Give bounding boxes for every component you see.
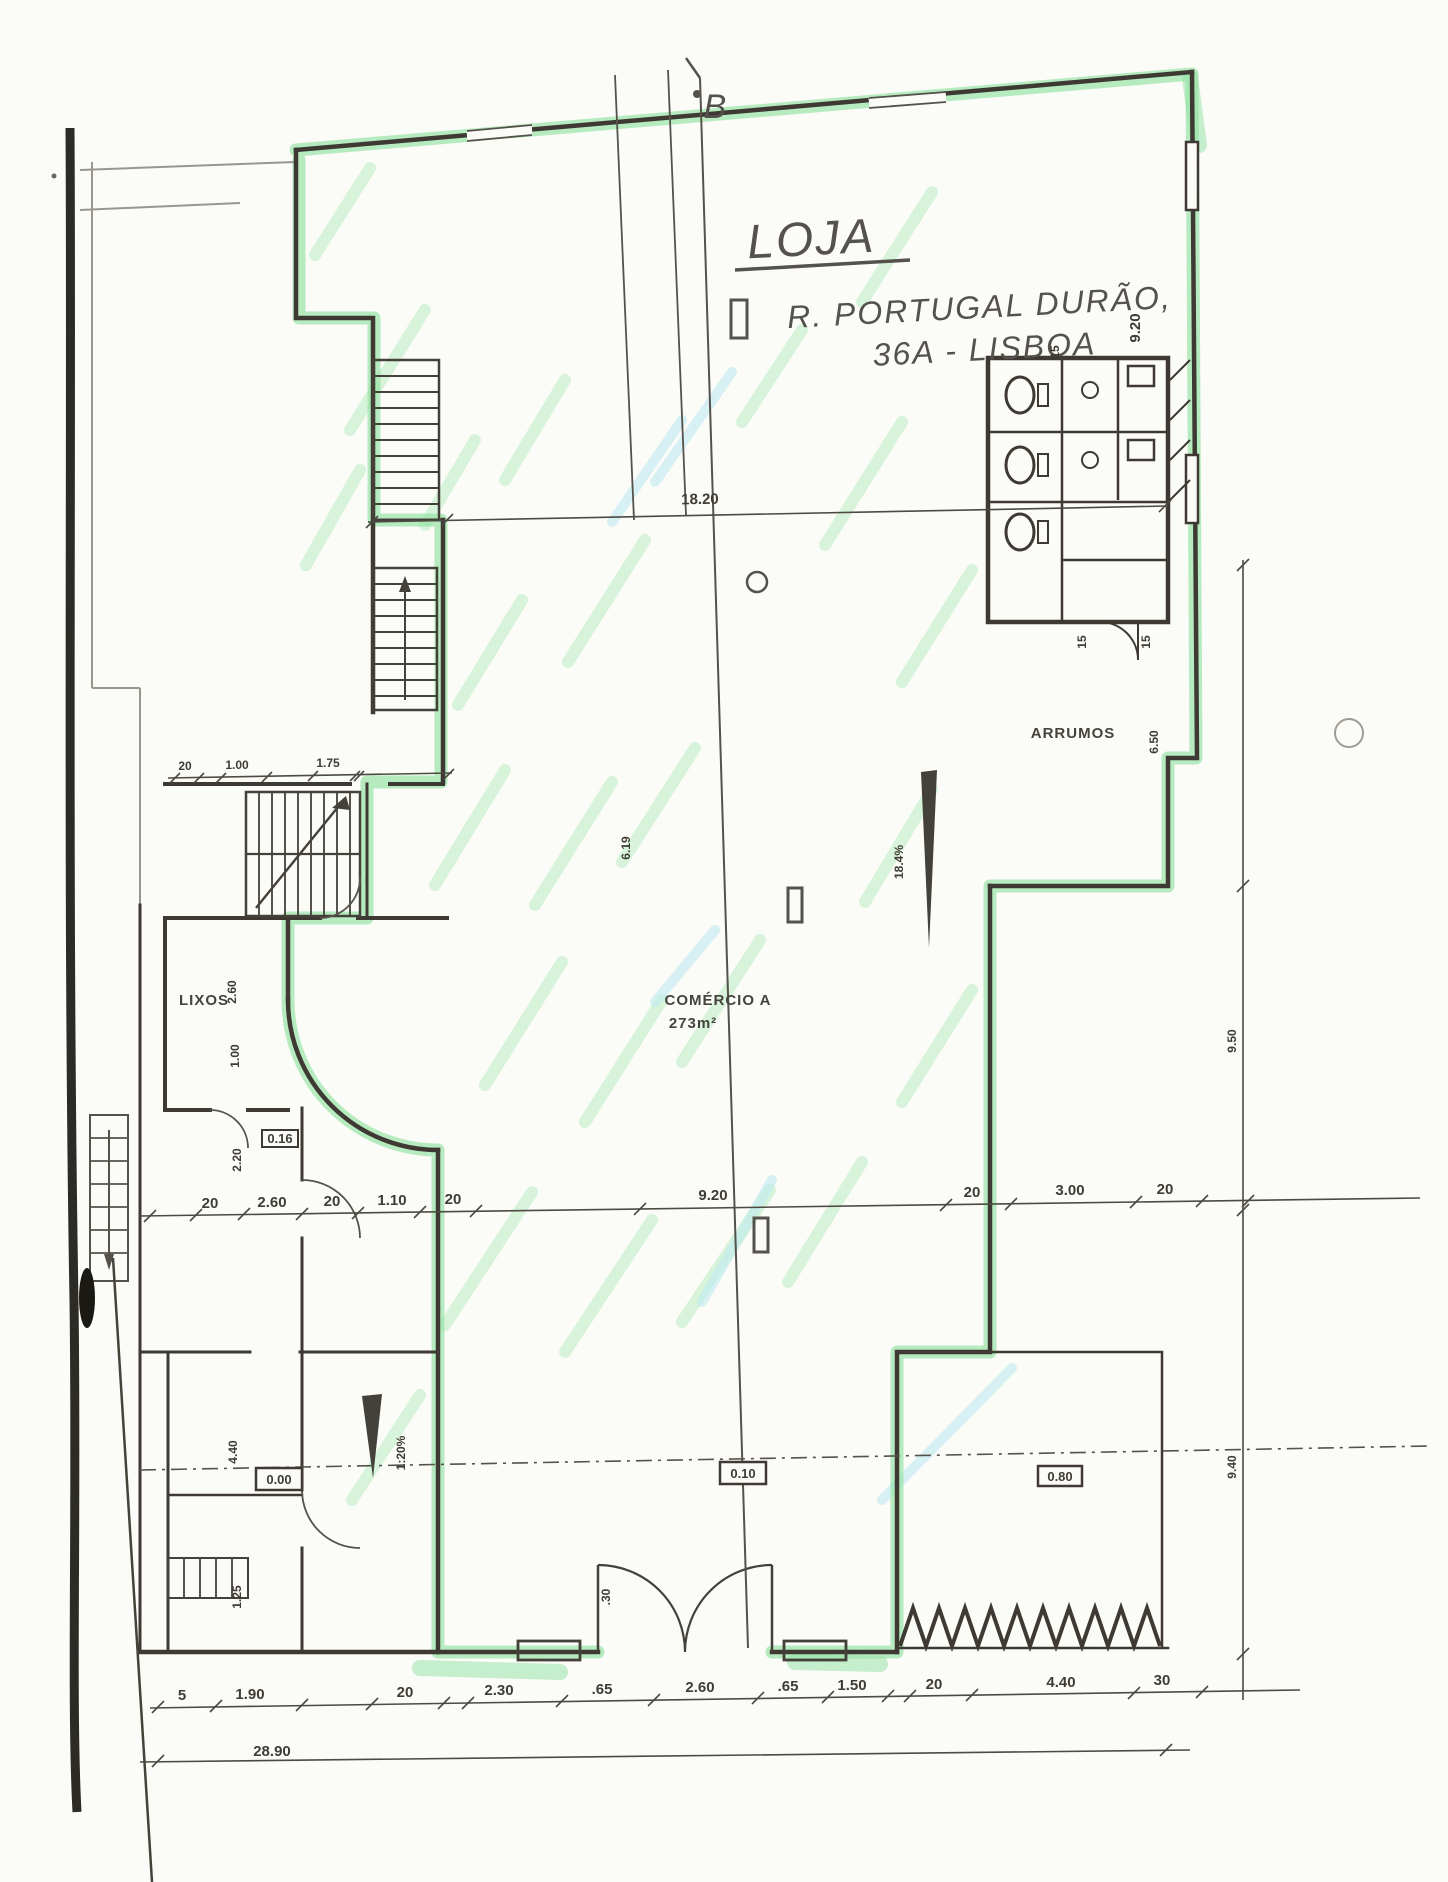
dim-bottom-9: 4.40: [1046, 1674, 1075, 1691]
dim-right-2: 9.50: [1225, 1029, 1239, 1053]
room-label-arrumos: ARRUMOS: [1031, 725, 1116, 742]
level-entrance: 0.00: [266, 1472, 291, 1487]
dim-middle-0: 20: [202, 1195, 219, 1212]
slope-label-right: 18.4%: [892, 845, 906, 879]
dim-middle-7: 3.00: [1055, 1182, 1084, 1199]
handwritten-title: LOJA: [746, 210, 877, 270]
dim-left-2: 2.20: [230, 1148, 244, 1172]
scanned-floor-plan-page: LOJA R. PORTUGAL DURÃO, 36A - LISBOA B A…: [0, 0, 1448, 1882]
dim-middle-2: 20: [324, 1193, 341, 1210]
dim-middle-3: 1.10: [377, 1192, 406, 1209]
dim-bottom-3: 2.30: [484, 1682, 513, 1699]
dim-wc-1: 15: [1075, 635, 1089, 649]
room-label-lixos: LIXOS: [179, 992, 229, 1009]
dim-top-total: 18.20: [681, 491, 719, 509]
dim-bottom-4: .65: [592, 1681, 613, 1698]
dim-bottom-6: .65: [778, 1678, 799, 1695]
slope-label-left: 1:20%: [394, 1435, 408, 1470]
dim-middle-8: 20: [1157, 1181, 1174, 1198]
dim-bottom-8: 20: [926, 1676, 943, 1693]
dim-left-4: 1.25: [230, 1585, 244, 1609]
dim-middle-6: 20: [964, 1184, 981, 1201]
dim-ul-2: 1.75: [316, 756, 340, 770]
dim-bottom-2: 20: [397, 1684, 414, 1701]
floor-plan-drawing: LOJA R. PORTUGAL DURÃO, 36A - LISBOA B A…: [0, 0, 1448, 1882]
room-label-comercio-area: 273m²: [669, 1015, 717, 1032]
dim-bottom-10: 30: [1154, 1672, 1171, 1689]
level-mid: 0.10: [730, 1466, 755, 1481]
paper-background: [0, 0, 1448, 1882]
dim-ul-0: 20: [178, 759, 192, 773]
level-right: 0.80: [1047, 1469, 1072, 1484]
dim-bottom-5: 2.60: [685, 1679, 714, 1696]
dim-right-0: 9.20: [1127, 313, 1144, 342]
dim-right-3: 9.40: [1225, 1455, 1239, 1479]
dim-door-width: .30: [599, 1588, 613, 1605]
dim-center-vertical: 6.19: [619, 836, 633, 860]
level-small: 0.16: [267, 1131, 292, 1146]
dim-bottom-0: 5: [178, 1687, 186, 1704]
dim-left-1: 1.00: [228, 1044, 242, 1068]
dim-middle-1: 2.60: [257, 1194, 286, 1211]
section-marker-label: B: [704, 88, 729, 126]
dim-ul-1: 1.00: [225, 758, 249, 772]
dim-bottom-total: 28.90: [253, 1743, 291, 1760]
dim-bottom-7: 1.50: [837, 1677, 866, 1694]
dim-wc-2: 15: [1139, 635, 1153, 649]
dim-middle-4: 20: [445, 1191, 462, 1208]
dim-middle-5: 9.20: [698, 1187, 727, 1204]
dim-wc-0: 15: [1048, 345, 1062, 359]
dim-right-1: 6.50: [1147, 730, 1161, 754]
dim-bottom-1: 1.90: [235, 1686, 264, 1703]
dim-left-0: 2.60: [225, 980, 239, 1004]
dim-left-3: 4.40: [226, 1440, 240, 1464]
room-label-comercio: COMÉRCIO A: [665, 992, 772, 1009]
